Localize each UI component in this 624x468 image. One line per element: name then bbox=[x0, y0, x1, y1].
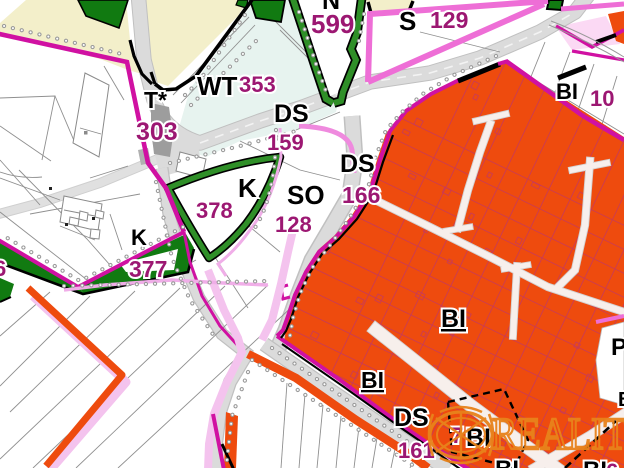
svg-text:WT: WT bbox=[197, 71, 238, 101]
svg-text:K: K bbox=[131, 225, 147, 250]
svg-text:599: 599 bbox=[311, 9, 354, 39]
svg-text:303: 303 bbox=[136, 118, 178, 146]
svg-text:S: S bbox=[399, 6, 416, 36]
svg-text:159: 159 bbox=[267, 130, 304, 155]
svg-text:353: 353 bbox=[239, 72, 276, 97]
svg-text:DS: DS bbox=[340, 150, 375, 178]
svg-text:SO: SO bbox=[287, 180, 325, 210]
svg-text:K: K bbox=[238, 173, 257, 203]
svg-text:BI: BI bbox=[361, 367, 384, 393]
svg-text:DS: DS bbox=[274, 100, 309, 128]
svg-text:BI: BI bbox=[556, 79, 578, 104]
svg-text:378: 378 bbox=[196, 198, 233, 223]
svg-text:P: P bbox=[611, 334, 624, 361]
svg-text:129: 129 bbox=[430, 7, 468, 33]
svg-text:377: 377 bbox=[129, 256, 167, 282]
svg-text:128: 128 bbox=[275, 212, 312, 237]
svg-text:BI: BI bbox=[441, 305, 466, 333]
svg-text:REALITNÍ: REALITNÍ bbox=[492, 409, 624, 459]
svg-text:6: 6 bbox=[0, 256, 6, 281]
svg-text:T*: T* bbox=[144, 87, 167, 113]
svg-text:166: 166 bbox=[342, 182, 380, 208]
svg-text:6: 6 bbox=[606, 459, 618, 468]
svg-text:B: B bbox=[618, 389, 624, 411]
svg-text:10: 10 bbox=[590, 86, 614, 111]
svg-text:DS: DS bbox=[394, 404, 429, 432]
